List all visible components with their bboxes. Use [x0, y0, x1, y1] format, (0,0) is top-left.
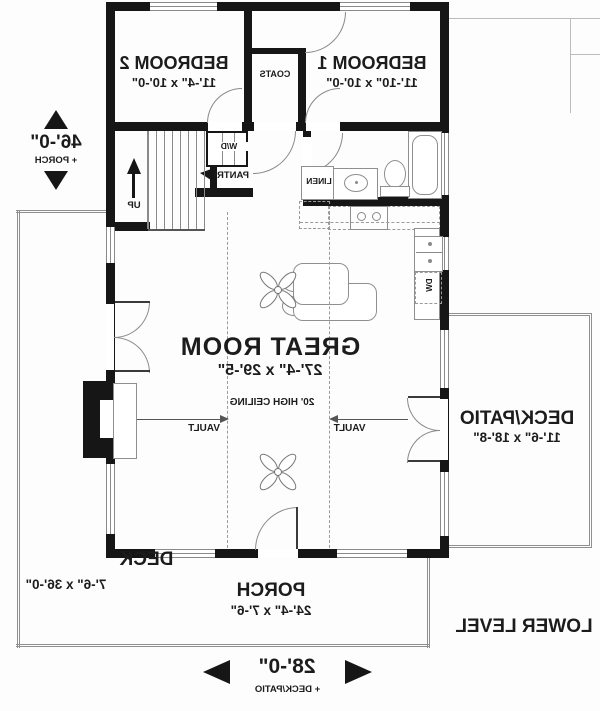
- gap-bedroom2-door: [208, 122, 242, 131]
- french-left-leaf2: [408, 460, 440, 462]
- up-label: UP: [118, 201, 150, 211]
- window-left-deck-upper: [440, 330, 449, 388]
- french-left-leaf1-arc: [407, 398, 440, 431]
- bedroom1-door-arc: [305, 88, 340, 123]
- floor-plan-screenshot: LINEN COATS W/D PANTRY UP DW GREAT ROOM …: [0, 0, 600, 711]
- fireplace-hearth: [113, 383, 137, 459]
- wall-stair-bottom-stub: [115, 222, 150, 231]
- floor-plan: LINEN COATS W/D PANTRY UP DW GREAT ROOM …: [0, 0, 600, 711]
- stairs-up-arrow-stem: [132, 174, 135, 198]
- width-arrow-left-icon: [345, 660, 372, 684]
- french-right-leaf2-arc: [114, 337, 150, 373]
- depth-arrow-up-icon: [44, 110, 68, 129]
- french-right-leaf2: [115, 370, 150, 372]
- porch-dims: 24'-4" x 7'-6": [211, 604, 331, 618]
- bedroom1-label: BEDROOM 1: [297, 54, 447, 73]
- french-right-leaf1-arc: [114, 302, 150, 338]
- vault-arrow-right-head: [220, 415, 229, 423]
- stair-edge: [147, 131, 148, 229]
- upper-left-structure-outline: [449, 18, 600, 114]
- vault-line-right: [227, 212, 228, 548]
- french-left-leaf2-arc: [407, 430, 440, 463]
- deck-patio-label: DECK/PATIO: [447, 409, 587, 429]
- toilet-tank: [380, 186, 410, 197]
- gap-french-right: [106, 304, 114, 370]
- vault-label-left: VAULT: [327, 424, 372, 435]
- ceiling-fan-icon: [255, 267, 301, 313]
- porch-door-leaf: [296, 507, 298, 549]
- window-bedroom1-top: [340, 2, 410, 11]
- french-left-leaf1: [408, 396, 440, 398]
- window-right-upper: [106, 227, 115, 263]
- closet-door-arc: [305, 12, 346, 53]
- vault-line-left: [329, 212, 330, 548]
- toilet-bowl: [384, 160, 406, 188]
- bedroom2-label: BEDROOM 2: [100, 54, 248, 73]
- gap-coats-door: [254, 122, 296, 131]
- dishwasher-label: DW: [426, 270, 434, 300]
- deck-edge-top: [16, 210, 106, 217]
- vanity-sink-drain: [355, 181, 358, 184]
- range-burner-2: [357, 212, 366, 221]
- linen-label: LINEN: [300, 177, 338, 186]
- stair-bottom-line: [148, 229, 205, 231]
- window-right-lower: [106, 464, 115, 534]
- kitchen-sink-drain-2: [428, 259, 432, 263]
- window-bedroom2-top: [150, 2, 217, 11]
- porch-label: PORCH: [235, 581, 307, 601]
- depth-arrow-down-icon: [44, 171, 68, 190]
- vault-arrow-right-line: [127, 419, 222, 420]
- upper-left-structure-line: [570, 18, 571, 113]
- coats-door-arc: [253, 131, 296, 174]
- range-burner-1: [372, 212, 381, 221]
- vault-arrow-left-line: [336, 419, 408, 420]
- ceiling-fan-icon: [255, 449, 301, 495]
- deck-label: DECK: [100, 550, 193, 570]
- kitchen-sink-divider: [416, 252, 443, 253]
- upper-left-structure-line2: [571, 54, 600, 55]
- kitchen-sink-drain-1: [428, 242, 432, 246]
- width-arrow-right-icon: [203, 660, 230, 684]
- great-room-label: GREAT ROOM: [165, 334, 375, 360]
- great-room-dims: 27'-4" x 29'-5": [165, 363, 375, 380]
- island-upper: [293, 263, 349, 305]
- depth-note: + PORCH: [16, 156, 96, 166]
- width-dimension: 28'-0": [227, 656, 347, 678]
- vault-arrow-left-head: [329, 415, 338, 423]
- window-left-deck-lower: [440, 472, 449, 536]
- kitchen-dashed-line: [300, 222, 440, 223]
- width-note: + DECK/PATIO: [205, 685, 370, 695]
- stairs-up-arrow-icon: [127, 158, 141, 174]
- porch-edge-left: [423, 558, 430, 648]
- deck-edge-bottom: [16, 644, 430, 651]
- lower-level-label: LOWER LEVEL: [448, 617, 600, 637]
- french-right-leaf1: [115, 301, 150, 303]
- window-greatroom-bottom-left: [337, 549, 407, 558]
- wd-label: W/D: [210, 142, 248, 151]
- refrigerator: [299, 201, 330, 229]
- stair-treads: [148, 131, 205, 229]
- bedroom1-dims: 11'-10" x 10'-0": [297, 76, 447, 90]
- gap-porch-door: [258, 549, 298, 558]
- porch-door-arc: [255, 507, 298, 550]
- gap-bedroom1-door: [306, 122, 340, 131]
- range: [350, 206, 388, 230]
- bedroom2-door-arc: [207, 88, 242, 123]
- bathtub-basin: [412, 135, 438, 195]
- ceiling-label: 20' HIGH CEILING: [202, 398, 342, 409]
- bedroom2-dims: 11'-4" x 10'-0": [100, 76, 248, 90]
- deck-patio-dims: 11'-6" x 18'-8": [447, 431, 587, 445]
- vault-label-right: VAULT: [178, 424, 230, 435]
- depth-dimension: 46'-0": [16, 133, 96, 153]
- coats-label: COATS: [250, 70, 300, 79]
- deck-dims: 7'-6" x 36'-0": [2, 578, 130, 592]
